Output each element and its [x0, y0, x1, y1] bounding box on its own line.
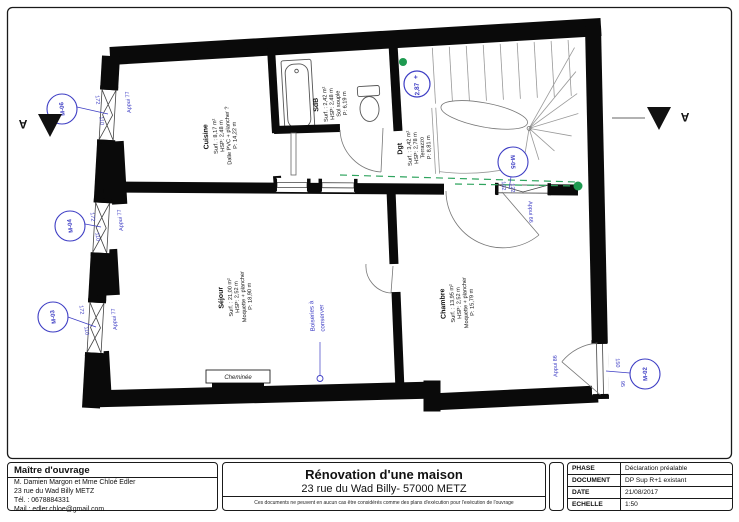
- sill-labels: Appui 77 Appui 77 Appui 77 Appui 86 Appu…: [111, 91, 559, 377]
- svg-text:Appui 86: Appui 86: [553, 355, 560, 377]
- drawing-sheet: Cheminée Cuisine Surf. : 8,17 m² HSP: 2,…: [0, 0, 739, 522]
- room-label-chambre: Chambre Surf. : 13,95 m² HSP: 2,52 m Moq…: [439, 276, 477, 329]
- svg-text:Chambre: Chambre: [439, 288, 448, 319]
- owner-address: 23 rue du Wad Billy METZ: [8, 487, 217, 496]
- room-label-dgt: Dgt Surf. : 3,42 m² HSP: 2,78 m Terrazzo…: [396, 129, 433, 166]
- bathtub: [281, 59, 315, 133]
- svg-text:conserver: conserver: [318, 304, 326, 332]
- meta-value-document: DP Sup R+1 existant: [621, 475, 732, 487]
- section-marker-right: A: [612, 107, 689, 130]
- marker-m05: M-05: [509, 155, 516, 170]
- owner-title: Maître d'ouvrage: [8, 463, 217, 478]
- spacer-block: [549, 462, 564, 511]
- svg-text:Séjour: Séjour: [217, 286, 225, 308]
- room-label-cuisine: Cuisine Surf. : 8,17 m² HSP: 2,48 m Dall…: [201, 106, 240, 166]
- project-block: Rénovation d'une maison 23 rue du Wad Bi…: [222, 462, 546, 511]
- svg-text:102: 102: [500, 181, 506, 190]
- section-marker-left: A: [18, 114, 62, 137]
- window-m04: [90, 198, 112, 257]
- meta-value-echelle: 1:50: [621, 499, 732, 510]
- svg-text:95: 95: [619, 381, 625, 387]
- svg-text:Boiseries à: Boiseries à: [308, 300, 317, 331]
- meta-label-echelle: ECHELLE: [568, 499, 621, 510]
- meta-block: PHASE Déclaration préalable DOCUMENT DP …: [567, 462, 733, 511]
- fireplace: Cheminée: [206, 370, 270, 392]
- meta-value-phase: Déclaration préalable: [621, 463, 732, 475]
- wall-opening-1: [273, 178, 310, 192]
- svg-text:P: 15,79 m: P: 15,79 m: [469, 288, 476, 316]
- svg-text:172: 172: [88, 212, 95, 222]
- exterior-walls: [87, 26, 601, 411]
- project-title: Rénovation d'une maison: [223, 467, 545, 482]
- window-markers: [38, 94, 660, 389]
- room-label-sejour: Séjour Surf. : 21,00 m² HSP: 2,52 m Moqu…: [217, 270, 255, 323]
- svg-text:122: 122: [509, 183, 515, 192]
- owner-block: Maître d'ouvrage M. Damien Margon et Mme…: [7, 462, 218, 511]
- svg-text:Appui 77: Appui 77: [111, 308, 119, 330]
- svg-text:Dgt: Dgt: [397, 142, 405, 155]
- wall-opening-2: [318, 178, 357, 192]
- level-marker: + 2,87: [404, 71, 430, 97]
- green-dot-right: [574, 182, 583, 191]
- svg-text:110: 110: [82, 326, 89, 335]
- section-letter-left: A: [18, 117, 27, 131]
- level-value: 2,87: [414, 82, 422, 95]
- svg-text:110: 110: [93, 232, 100, 241]
- meta-label-document: DOCUMENT: [568, 475, 621, 487]
- svg-text:SdB: SdB: [313, 98, 321, 112]
- svg-text:172: 172: [93, 95, 100, 105]
- floor-plan: Cheminée Cuisine Surf. : 8,17 m² HSP: 2,…: [0, 0, 739, 460]
- svg-text:110: 110: [97, 116, 104, 125]
- svg-text:Appui 77: Appui 77: [117, 209, 125, 231]
- marker-m02: M-02: [643, 366, 650, 381]
- svg-text:Cuisine: Cuisine: [202, 124, 210, 150]
- svg-text:150: 150: [614, 358, 620, 367]
- svg-text:P: 14,22 m: P: 14,22 m: [232, 121, 239, 149]
- svg-text:Appui 77: Appui 77: [125, 91, 133, 113]
- meta-value-date: 21/08/2017: [621, 487, 732, 499]
- svg-text:Appui 66: Appui 66: [527, 201, 534, 223]
- stair-handrail: [439, 95, 530, 135]
- note-boiseries: Boiseries à conserver: [308, 300, 327, 381]
- meta-label-phase: PHASE: [568, 463, 621, 475]
- section-letter-right: A: [680, 110, 689, 124]
- svg-text:172: 172: [77, 305, 84, 315]
- level-plus: +: [413, 75, 420, 79]
- window-marker-texts: M-06 M-04 M-03 M-02 M-05: [50, 101, 649, 381]
- toilet: [357, 85, 381, 122]
- owner-name: M. Damien Margon et Mme Chloé Edler: [8, 478, 217, 487]
- green-dot-top: [399, 58, 407, 66]
- meta-label-date: DATE: [568, 487, 621, 499]
- svg-text:P: 18,90 m: P: 18,90 m: [247, 282, 254, 310]
- svg-text:P: 8,81 m: P: 8,81 m: [426, 135, 433, 160]
- project-subtitle: 23 rue du Wad Billy- 57000 METZ: [223, 483, 545, 495]
- owner-phone: Tél. : 0678884331: [8, 496, 217, 505]
- svg-text:P: 6,19 m: P: 6,19 m: [342, 91, 349, 116]
- room-label-sdb: SdB Surf. : 2,42 m² HSP: 2,48 m Sol soup…: [312, 85, 349, 122]
- fireplace-label: Cheminée: [224, 375, 252, 381]
- window-dimensions: 172 110 172 110 172 110 150 95 102 122: [77, 95, 625, 387]
- disclaimer-text: Ces documents ne peuvent en aucun cas êt…: [223, 496, 545, 510]
- owner-mail: Mail : edler.chloe@gmail.com: [8, 505, 217, 514]
